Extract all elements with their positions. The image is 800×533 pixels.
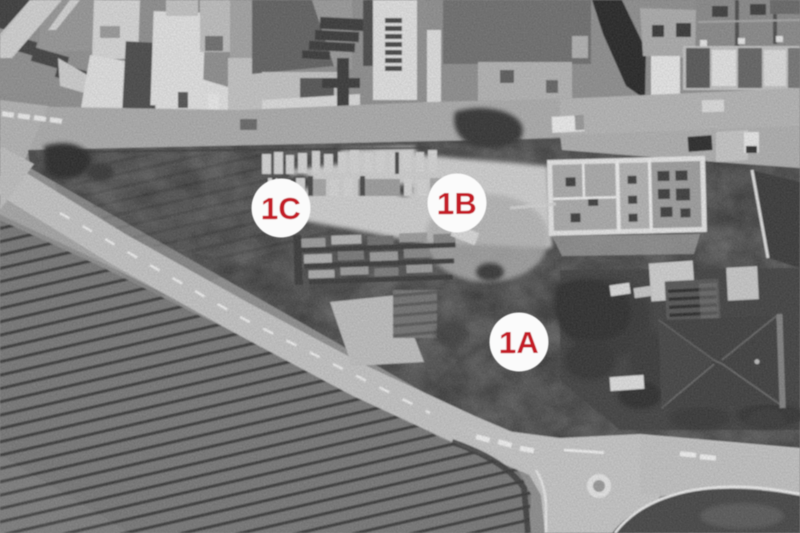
svg-text:1C: 1C: [261, 191, 301, 226]
svg-text:1B: 1B: [437, 186, 477, 221]
svg-text:1A: 1A: [499, 325, 539, 360]
